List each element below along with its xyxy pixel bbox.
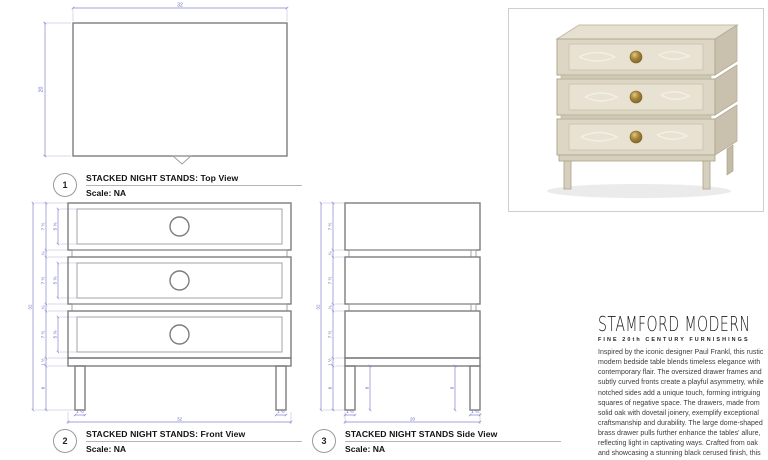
side-front-leg: [345, 366, 355, 410]
recessed-band: [561, 115, 711, 119]
view-scale: Scale: NA: [86, 444, 302, 454]
front-gap-band: [72, 250, 287, 257]
view-number-badge: 2: [53, 429, 77, 453]
front-right-leg: [276, 366, 286, 410]
front-drawer-unit: [68, 203, 291, 250]
front-unit-height-dimension: 7 ½: [40, 277, 46, 285]
side-unit: [345, 203, 480, 250]
base-rail: [559, 155, 715, 161]
brand-tagline: FINE 20th CENTURY FURNISHINGS: [598, 337, 766, 343]
side-leg-width-dimension: 1 ½: [471, 408, 479, 414]
drawer-knob: [170, 325, 189, 344]
top-view-outline: [73, 23, 287, 156]
front-drawer-height-dimension: 5 ⅝: [53, 277, 58, 285]
spec-sheet-page: 32 20 32: [0, 0, 768, 460]
drawer-block: [557, 39, 715, 75]
front-leg-width-dimension: 1 ½: [76, 408, 84, 414]
product-photo: [508, 8, 764, 212]
front-left-leg: [75, 366, 85, 410]
view-title: STACKED NIGHT STANDS: Front View: [86, 429, 302, 439]
center-marker-triangle: [173, 156, 191, 164]
drawer-block: [557, 119, 715, 155]
drawer-knob: [170, 271, 189, 290]
leg: [703, 161, 710, 189]
view-title: STACKED NIGHT STANDS Side View: [345, 429, 561, 439]
side-gap-band: [349, 304, 476, 311]
side-overall-height-dimension: 32: [316, 304, 321, 310]
front-view-drawing: 32 7 ½ ¾ 7 ½ ¾ 7 ½ 1 ½ 6 5 ⅝ 5 ⅝ 5 ⅝: [25, 195, 310, 435]
view-scale: Scale: NA: [345, 444, 561, 454]
view-number-badge: 3: [312, 429, 336, 453]
side-gap-dimension: ¾: [328, 305, 333, 309]
front-drawer-unit: [68, 311, 291, 358]
top-view-drawing: 32 20: [30, 0, 300, 168]
front-leg-width-dimension: 1 ½: [277, 408, 285, 414]
recessed-band: [561, 75, 711, 79]
drawer-block: [557, 79, 715, 115]
front-drawer-panel: [77, 209, 282, 244]
front-gap-dimension: ¾: [41, 251, 46, 255]
brass-knob: [630, 91, 642, 103]
side-view-label: 3 STACKED NIGHT STANDS Side View Scale: …: [312, 429, 561, 454]
brand-logo: STAMFORD MODERN: [598, 312, 746, 336]
divider: [345, 441, 561, 442]
top-view-label: 1 STACKED NIGHT STANDS: Top View Scale: …: [53, 173, 302, 198]
side-leg-inner-dimension: 8: [365, 386, 370, 389]
front-drawer-height-dimension: 5 ⅝: [53, 331, 58, 339]
front-drawer-panel: [77, 263, 282, 298]
side-unit-height-dimension: 7 ½: [327, 277, 333, 285]
front-leg-height-dimension: 6: [41, 386, 46, 389]
product-photo-illustration: [509, 9, 763, 211]
view-title: STACKED NIGHT STANDS: Top View: [86, 173, 302, 183]
side-rail-dimension: 1 ½: [327, 358, 333, 366]
side-gap-band: [349, 250, 476, 257]
side-unit: [345, 257, 480, 304]
top-depth-dimension: 20: [39, 87, 45, 93]
brand-block: STAMFORD MODERN FINE 20th CENTURY FURNIS…: [598, 312, 766, 460]
front-unit-height-dimension: 7 ½: [40, 223, 46, 231]
side-unit-height-dimension: 7 ½: [327, 223, 333, 231]
side-leg-width-dimension: 1 ½: [346, 408, 354, 414]
side-gap-dimension: ¾: [328, 251, 333, 255]
brass-knob: [630, 131, 642, 143]
divider: [86, 441, 302, 442]
front-unit-height-dimension: 7 ½: [40, 331, 46, 339]
front-drawer-panel: [77, 317, 282, 352]
brass-knob: [630, 51, 642, 63]
view-number-badge: 1: [53, 173, 77, 197]
top-width-dimension: 32: [177, 3, 183, 9]
divider: [86, 185, 302, 186]
front-view-label: 2 STACKED NIGHT STANDS: Front View Scale…: [53, 429, 302, 454]
side-view-drawing: 32 7 ½ ¾ 7 ½ ¾ 7 ½ 1 ½ 6 8 8 1: [313, 195, 513, 435]
front-overall-height-dimension: 32: [28, 304, 33, 310]
side-leg-inner-dimension: 8: [450, 386, 455, 389]
side-unit: [345, 311, 480, 358]
front-gap-dimension: ¾: [41, 305, 46, 309]
front-width-dimension: 32: [177, 417, 183, 422]
product-description: Inspired by the iconic designer Paul Fra…: [598, 348, 766, 460]
view-scale: Scale: NA: [86, 188, 302, 198]
cabinet-top-face: [557, 25, 737, 39]
side-base-rail: [345, 358, 480, 366]
front-base-rail: [68, 358, 291, 366]
front-drawer-unit: [68, 257, 291, 304]
front-drawer-height-dimension: 5 ⅝: [53, 223, 58, 231]
side-leg-height-dimension: 6: [328, 386, 333, 389]
side-depth-dimension: 20: [410, 417, 416, 422]
drawer-knob: [170, 217, 189, 236]
side-back-leg: [470, 366, 480, 410]
front-gap-band: [72, 304, 287, 311]
leg: [564, 161, 571, 189]
front-rail-dimension: 1 ½: [40, 358, 46, 366]
side-unit-height-dimension: 7 ½: [327, 331, 333, 339]
leg: [727, 145, 733, 175]
